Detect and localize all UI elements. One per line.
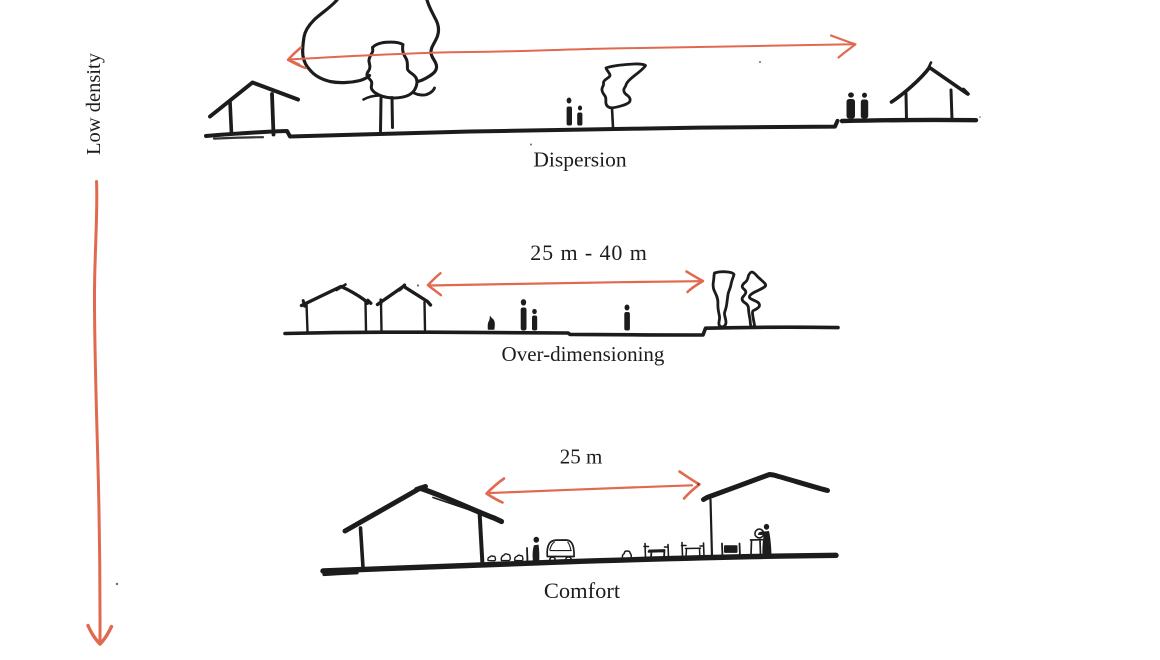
svg-text:Low density: Low density — [83, 52, 105, 155]
svg-text:25 m - 40 m: 25 m - 40 m — [530, 240, 647, 265]
svg-text:Over-dimensioning: Over-dimensioning — [502, 342, 665, 366]
svg-text:25 m: 25 m — [560, 445, 603, 469]
svg-text:Comfort: Comfort — [544, 578, 621, 603]
svg-text:Dispersion: Dispersion — [533, 148, 626, 172]
